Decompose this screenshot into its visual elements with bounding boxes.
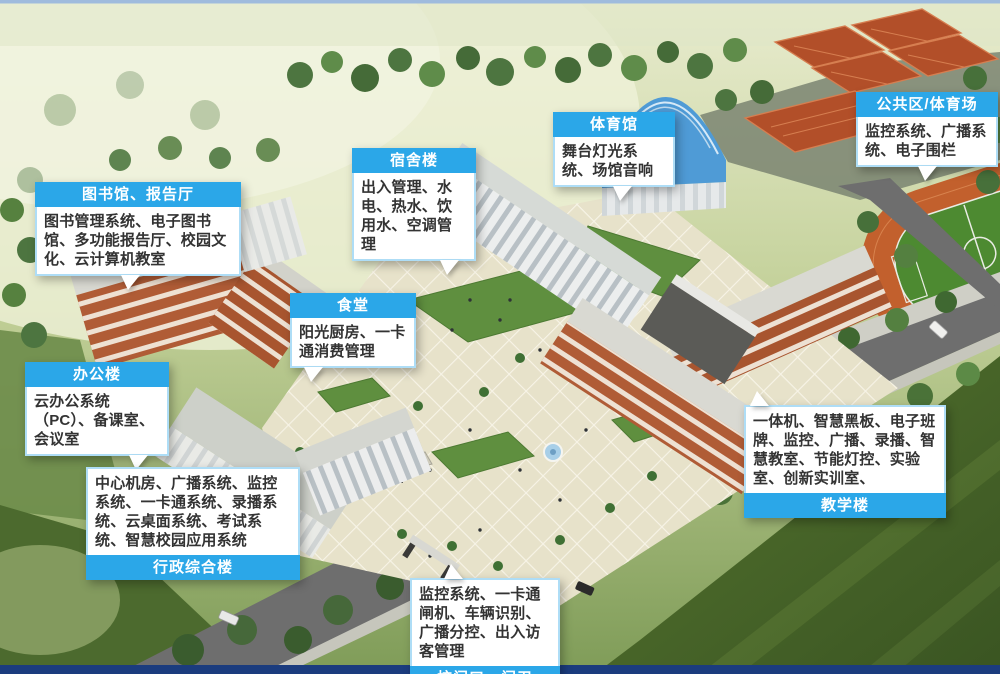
callout-library-hall-body: 图书管理系统、电子图书馆、多功能报告厅、校园文化、云计算机教室 — [35, 207, 241, 276]
callout-dormitory: 宿舍楼 出入管理、水电、热水、饮用水、空调管理 — [352, 148, 476, 261]
callout-library-hall: 图书馆、报告厅 图书管理系统、电子图书馆、多功能报告厅、校园文化、云计算机教室 — [35, 182, 241, 276]
callout-tail — [440, 260, 459, 275]
callout-admin-complex: 中心机房、广播系统、监控系统、一卡通系统、录播系统、云桌面系统、考试系统、智慧校… — [86, 467, 300, 580]
callout-public-stadium-body: 监控系统、广播系统、电子围栏 — [856, 117, 998, 167]
campus-map: 图书馆、报告厅 图书管理系统、电子图书馆、多功能报告厅、校园文化、云计算机教室 … — [0, 0, 1000, 674]
callout-tail — [613, 186, 632, 201]
callout-canteen-body: 阳光厨房、一卡通消费管理 — [290, 318, 416, 368]
callout-tail — [444, 564, 463, 579]
callout-gymnasium-body: 舞台灯光系统、场馆音响 — [553, 137, 675, 187]
callout-office-title: 办公楼 — [25, 362, 169, 387]
callout-public-stadium: 公共区/体育场 监控系统、广播系统、电子围栏 — [856, 92, 998, 167]
callout-office-body: 云办公系统（PC）、备课室、会议室 — [25, 387, 169, 456]
callout-dormitory-title: 宿舍楼 — [352, 148, 476, 173]
callout-library-hall-title: 图书馆、报告厅 — [35, 182, 241, 207]
callout-gymnasium: 体育馆 舞台灯光系统、场馆音响 — [553, 112, 675, 187]
callout-canteen: 食堂 阳光厨房、一卡通消费管理 — [290, 293, 416, 368]
callout-teaching-title: 教学楼 — [744, 493, 946, 518]
callout-gymnasium-title: 体育馆 — [553, 112, 675, 137]
callout-tail — [304, 367, 323, 382]
callout-tail — [121, 275, 140, 290]
callout-gate-body: 监控系统、一卡通闸机、车辆识别、广播分控、出入访客管理 — [410, 578, 560, 666]
callout-office: 办公楼 云办公系统（PC）、备课室、会议室 — [25, 362, 169, 456]
callout-tail — [750, 391, 769, 406]
callout-tail — [918, 166, 937, 181]
callout-teaching-body: 一体机、智慧黑板、电子班牌、监控、广播、录播、智慧教室、节能灯控、实验室、创新实… — [744, 405, 946, 493]
callout-gate-title: 校门口、门卫 — [410, 666, 560, 674]
fountain — [544, 443, 562, 461]
callout-canteen-title: 食堂 — [290, 293, 416, 318]
top-border-line — [0, 0, 1000, 4]
callout-admin-complex-body: 中心机房、广播系统、监控系统、一卡通系统、录播系统、云桌面系统、考试系统、智慧校… — [86, 467, 300, 555]
callout-teaching: 一体机、智慧黑板、电子班牌、监控、广播、录播、智慧教室、节能灯控、实验室、创新实… — [744, 405, 946, 518]
callout-gate: 监控系统、一卡通闸机、车辆识别、广播分控、出入访客管理 校门口、门卫 — [410, 578, 560, 674]
callout-public-stadium-title: 公共区/体育场 — [856, 92, 998, 117]
callout-admin-complex-title: 行政综合楼 — [86, 555, 300, 580]
callout-dormitory-body: 出入管理、水电、热水、饮用水、空调管理 — [352, 173, 476, 261]
